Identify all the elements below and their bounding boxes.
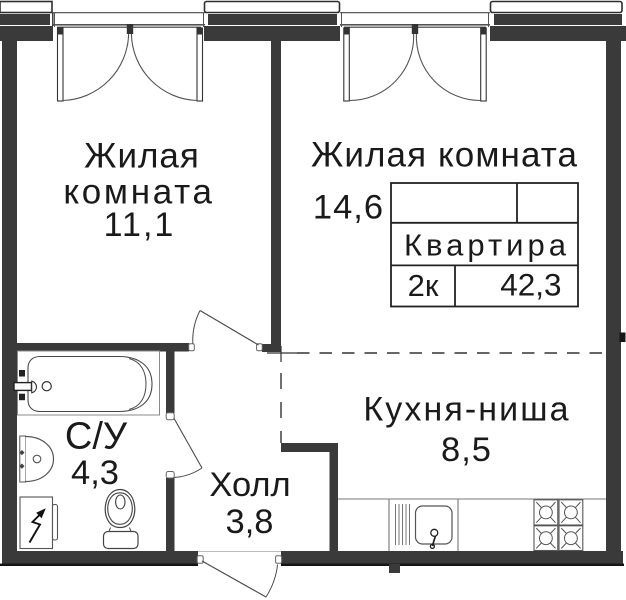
svg-text:С/У: С/У xyxy=(65,416,128,458)
svg-text:14,6: 14,6 xyxy=(313,189,384,227)
svg-text:Кухня-ниша: Кухня-ниша xyxy=(363,391,570,429)
svg-text:2к: 2к xyxy=(408,268,439,303)
svg-text:42,3: 42,3 xyxy=(500,267,561,303)
svg-text:Жилая: Жилая xyxy=(84,137,200,176)
svg-text:Квартира: Квартира xyxy=(404,228,570,263)
svg-text:Жилая комната: Жилая комната xyxy=(311,136,578,175)
svg-text:11,1: 11,1 xyxy=(104,206,176,244)
svg-text:Холл: Холл xyxy=(209,466,290,504)
svg-text:4,3: 4,3 xyxy=(71,454,119,492)
svg-text:3,8: 3,8 xyxy=(226,503,274,541)
svg-text:8,5: 8,5 xyxy=(441,431,492,469)
